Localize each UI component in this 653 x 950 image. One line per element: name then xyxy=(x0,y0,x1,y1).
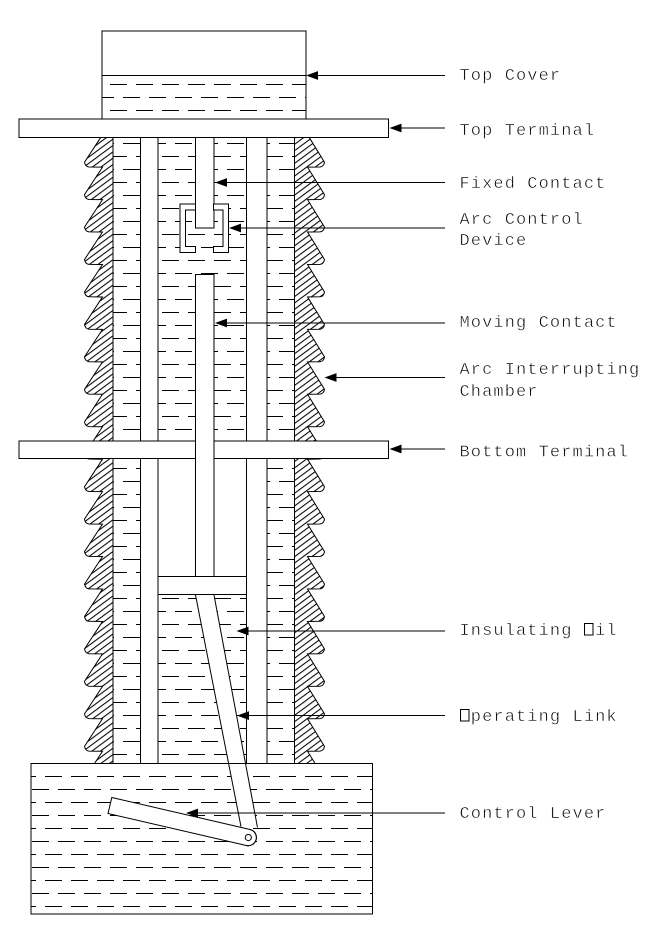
svg-text:Arc Control: Arc Control xyxy=(460,211,584,230)
svg-text:Bottom Terminal: Bottom Terminal xyxy=(460,444,630,463)
svg-text:Fixed Contact: Fixed Contact xyxy=(460,175,607,194)
svg-text:Moving Contact: Moving Contact xyxy=(460,314,618,333)
svg-text:Top Terminal: Top Terminal xyxy=(460,122,596,141)
svg-text:Control Lever: Control Lever xyxy=(460,805,607,824)
svg-text:Operating Link: Operating Link xyxy=(460,708,618,727)
svg-text:Device: Device xyxy=(460,232,528,251)
svg-text:Top Cover: Top Cover xyxy=(460,67,562,86)
svg-text:Chamber: Chamber xyxy=(460,383,539,402)
svg-text:Arc Interrupting: Arc Interrupting xyxy=(460,361,641,380)
